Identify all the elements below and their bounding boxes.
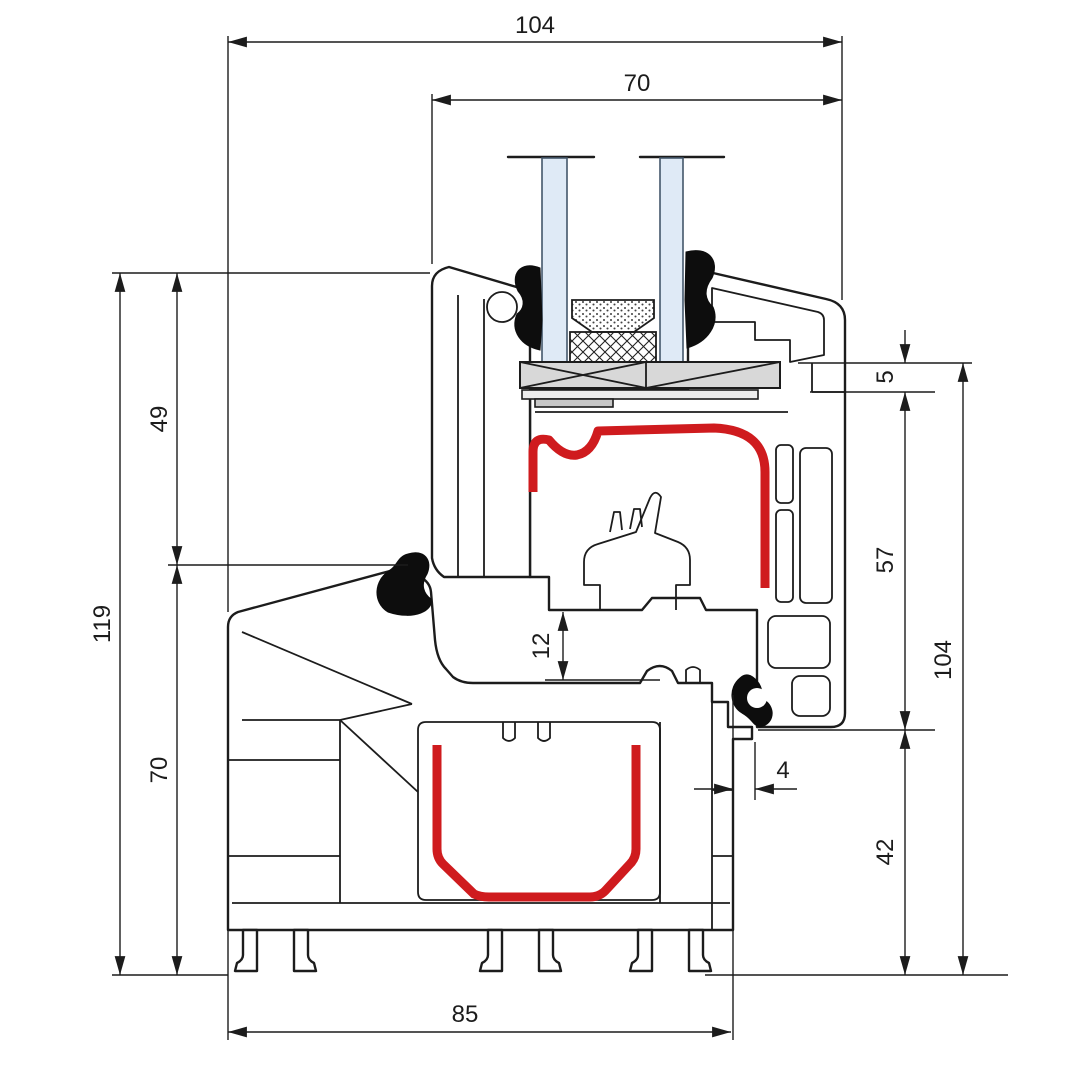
dim-label: 12 bbox=[528, 633, 555, 660]
dim-right-lip: 5 bbox=[872, 330, 905, 384]
glass-pane-outer bbox=[542, 158, 567, 362]
dim-top-sash-width: 70 bbox=[432, 70, 842, 100]
dim-left-upper-height: 49 bbox=[146, 273, 177, 565]
dim-label: 49 bbox=[146, 406, 173, 433]
glass-pane-inner bbox=[660, 158, 683, 362]
dim-label: 85 bbox=[452, 1001, 479, 1028]
gasket-hollow bbox=[747, 688, 767, 708]
frame-foot-2-right bbox=[539, 930, 561, 971]
dim-label: 104 bbox=[930, 640, 957, 680]
dim-label: 70 bbox=[146, 757, 173, 784]
dim-top-overall-width: 104 bbox=[228, 12, 842, 42]
frame-foot-1-left bbox=[235, 930, 257, 971]
dim-label: 70 bbox=[624, 70, 651, 97]
window-cross-section-drawing: 104 70 119 49 70 5 57 bbox=[0, 0, 1080, 1080]
frame-foot-3-left bbox=[630, 930, 652, 971]
glazing-packer-strip-2 bbox=[535, 399, 613, 407]
dim-left-lower-height: 70 bbox=[146, 565, 177, 975]
technical-drawing-canvas: 104 70 119 49 70 5 57 bbox=[0, 0, 1080, 1080]
dim-bottom-frame-width: 85 bbox=[228, 1001, 731, 1032]
dim-label: 104 bbox=[515, 12, 555, 39]
frame-ledge-stud bbox=[686, 667, 700, 683]
dim-label: 4 bbox=[776, 757, 789, 784]
spacer-desiccant bbox=[572, 300, 654, 332]
setting-block bbox=[520, 362, 780, 388]
frame-outline bbox=[228, 571, 752, 930]
dim-label: 42 bbox=[872, 839, 899, 866]
dim-rebate-gap: 12 bbox=[528, 612, 563, 680]
dim-right-sash-height: 57 bbox=[872, 392, 905, 730]
spacer-sealant-hatch bbox=[570, 332, 656, 362]
dim-label: 57 bbox=[872, 547, 899, 574]
dim-left-total-height: 119 bbox=[89, 273, 120, 975]
dim-right-frame-height: 42 bbox=[872, 730, 905, 975]
dim-label: 5 bbox=[872, 370, 899, 383]
frame-profile bbox=[228, 571, 752, 971]
dim-right-total-height: 104 bbox=[930, 363, 963, 975]
frame-sash-gasket-left bbox=[377, 553, 431, 616]
dim-label: 119 bbox=[89, 605, 116, 643]
glazing-packer-strip-1 bbox=[522, 390, 758, 399]
frame-foot-1-right bbox=[294, 930, 316, 971]
frame-foot-2-left bbox=[480, 930, 502, 971]
frame-foot-3-right bbox=[689, 930, 711, 971]
